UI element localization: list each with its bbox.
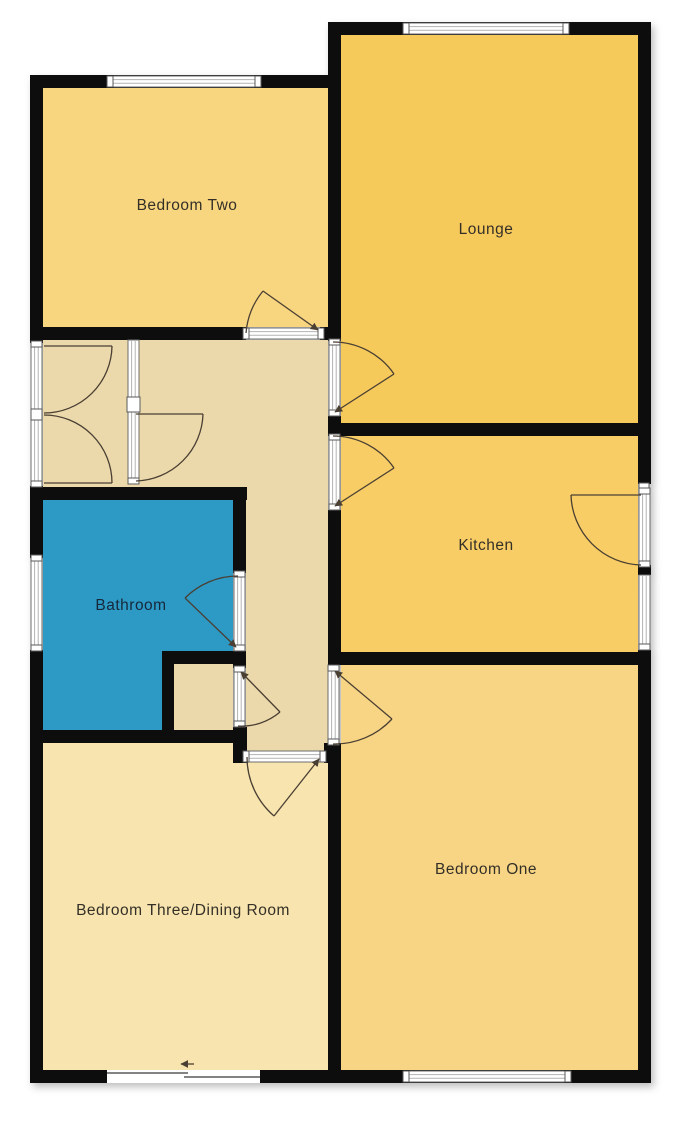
wall-segment bbox=[328, 423, 651, 436]
window-bedroom-two-top bbox=[107, 76, 261, 87]
window-bathroom-left bbox=[31, 555, 42, 651]
label-bedroom-one: Bedroom One bbox=[435, 861, 537, 878]
window-lounge-top bbox=[403, 23, 569, 34]
wall-segment bbox=[328, 22, 341, 341]
wall-segment bbox=[638, 650, 651, 1083]
wall-segment bbox=[162, 651, 174, 730]
wall-segment bbox=[638, 436, 651, 484]
door-strip-kitchen-hall bbox=[329, 434, 340, 510]
label-kitchen: Kitchen bbox=[458, 537, 513, 554]
door-strip-kitchen-exterior bbox=[639, 488, 650, 567]
wall-segment bbox=[162, 651, 246, 664]
floor-plan-page: Bedroom Two Lounge Kitchen Bathroom Bedr… bbox=[0, 0, 673, 1123]
wall-segment bbox=[30, 650, 43, 1083]
door-strip-bedroom-one bbox=[328, 665, 339, 745]
door-strip-bedroom-three bbox=[243, 751, 326, 762]
floor-plan-svg: Bedroom Two Lounge Kitchen Bathroom Bedr… bbox=[0, 0, 673, 1123]
sliding-door-bedroom-three bbox=[107, 1070, 260, 1083]
label-bathroom: Bathroom bbox=[95, 597, 166, 614]
window-bedroom-one-bottom bbox=[403, 1071, 571, 1082]
label-lounge: Lounge bbox=[459, 221, 514, 238]
floor-plan: Bedroom Two Lounge Kitchen Bathroom Bedr… bbox=[30, 22, 651, 1083]
room-hallway-corridor bbox=[246, 487, 328, 752]
wall-segment bbox=[30, 487, 247, 500]
wall-segment bbox=[328, 745, 341, 1083]
door-strip-bathroom bbox=[234, 571, 245, 651]
wall-segment bbox=[328, 652, 651, 665]
wall-segment bbox=[638, 22, 651, 436]
wall-segment bbox=[30, 327, 246, 340]
wall-segment bbox=[30, 730, 247, 743]
wall-segment bbox=[30, 75, 43, 343]
door-strip-entrance bbox=[31, 341, 42, 487]
door-strip-lounge bbox=[329, 339, 340, 416]
wall-segment bbox=[328, 510, 341, 652]
label-bedroom-three: Bedroom Three/Dining Room bbox=[76, 902, 290, 919]
door-strip-bedroom-two bbox=[243, 328, 324, 339]
room-cupboard-alcove bbox=[174, 664, 233, 730]
door-strip-porch-partition bbox=[127, 340, 140, 484]
label-bedroom-two: Bedroom Two bbox=[137, 197, 238, 214]
wall-segment bbox=[233, 500, 246, 573]
